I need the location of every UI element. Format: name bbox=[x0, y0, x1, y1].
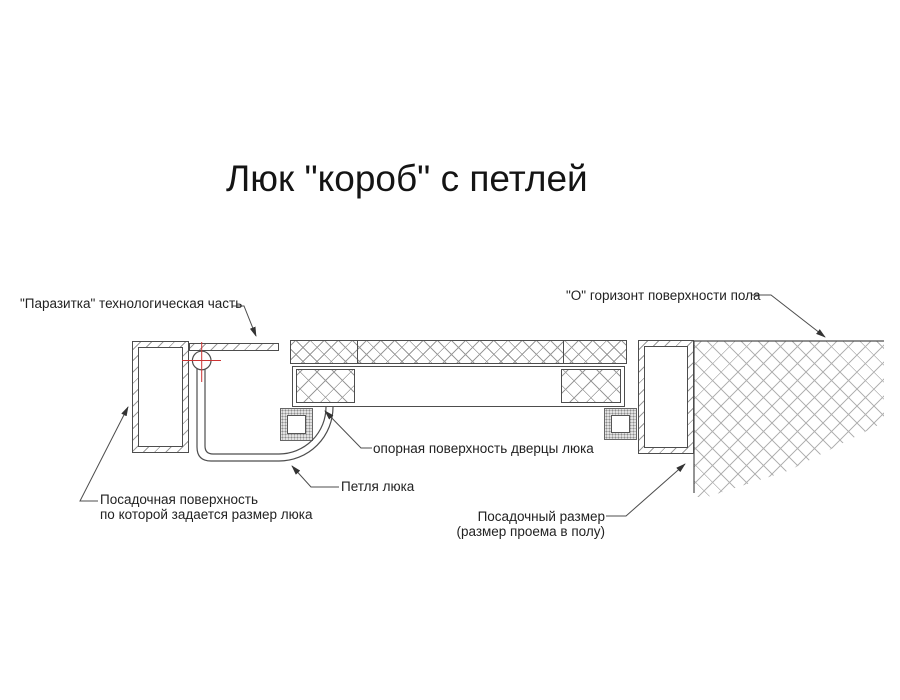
leader-horizon bbox=[751, 295, 825, 337]
leader-petlya bbox=[292, 466, 339, 487]
leader-posad-poverhnost bbox=[80, 407, 128, 501]
door-top-panel-divider-left bbox=[357, 341, 358, 363]
label-posad-poverhnost: Посадочная поверхность по которой задает… bbox=[100, 492, 313, 522]
seal-profile-right bbox=[604, 408, 637, 440]
label-petlya: Петля люка bbox=[341, 479, 414, 494]
label-posad-razmer-line2: (размер проема в полу) bbox=[455, 524, 605, 539]
seal-profile-right-cavity bbox=[611, 415, 630, 433]
door-top-panel-divider-right bbox=[563, 341, 564, 363]
label-parazitka: "Паразитка" технологическая часть bbox=[20, 296, 242, 311]
hatch-frame-left-cavity bbox=[138, 347, 183, 447]
seal-profile-left bbox=[280, 408, 313, 441]
label-posad-razmer-line1: Посадочный размер bbox=[455, 509, 605, 524]
hatch-frame-left bbox=[132, 341, 189, 453]
label-opornaya: опорная поверхность дверцы люка bbox=[373, 441, 594, 456]
floor-section bbox=[694, 341, 884, 497]
door-end-box-right bbox=[561, 369, 621, 403]
seal-profile-left-cavity bbox=[287, 415, 306, 434]
hatch-frame-right bbox=[638, 340, 694, 454]
hinge-pivot bbox=[192, 351, 211, 370]
label-posad-poverhnost-line1: Посадочная поверхность bbox=[100, 492, 313, 507]
label-horizon: "О" горизонт поверхности пола bbox=[566, 288, 761, 303]
page-title: Люк "короб" с петлей bbox=[226, 158, 588, 200]
hatch-frame-right-cavity bbox=[644, 346, 688, 448]
door-top-panel bbox=[290, 340, 627, 364]
label-posad-poverhnost-line2: по которой задается размер люка bbox=[100, 507, 313, 522]
diagram-canvas: Люк "короб" с петлей bbox=[0, 0, 900, 700]
door-end-box-left bbox=[296, 369, 355, 403]
door-lower-frame bbox=[292, 366, 625, 407]
label-posad-razmer: Посадочный размер (размер проема в полу) bbox=[455, 509, 605, 539]
leader-posad-razmer bbox=[606, 464, 685, 516]
leader-opornaya bbox=[325, 411, 372, 448]
parasite-plate bbox=[189, 343, 279, 351]
